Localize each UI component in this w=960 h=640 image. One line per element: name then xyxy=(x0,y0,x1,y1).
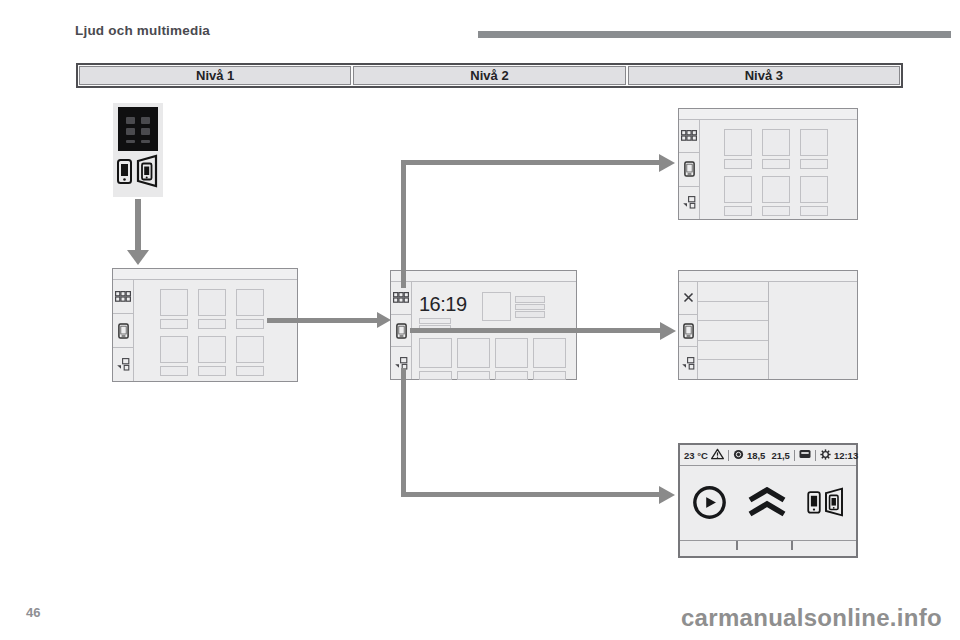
watermark: carmanualsonline.info xyxy=(681,604,942,632)
arrow-level2-to-list xyxy=(410,328,661,333)
page-title: Ljud och multimedia xyxy=(75,23,210,38)
arrow-level2-to-connect-horizontal xyxy=(401,492,661,497)
arrowhead-right-icon xyxy=(660,322,676,340)
bottom-strip xyxy=(680,540,856,556)
screen-sidebar xyxy=(391,282,412,379)
arrowhead-right-icon xyxy=(659,486,675,504)
separator xyxy=(728,450,729,461)
list-item xyxy=(698,301,768,321)
app-tile xyxy=(800,176,828,216)
gear-icon xyxy=(820,449,831,462)
clock-label-bar xyxy=(419,318,451,324)
status-bar: 23 °C 18,5 21,5 xyxy=(680,445,856,466)
status-time: 12:13 xyxy=(834,450,858,461)
widget-icon xyxy=(113,347,133,381)
level-1-header: Nivå 1 xyxy=(79,66,351,85)
media-widget xyxy=(482,292,511,321)
app-tile xyxy=(724,129,752,169)
smartphone-icon xyxy=(679,152,699,185)
level-3-header: Nivå 3 xyxy=(628,66,900,85)
level3-connect-screen: 23 °C 18,5 21,5 xyxy=(678,443,858,558)
level1-home-screen xyxy=(112,268,298,382)
arrow-start-to-level1 xyxy=(135,199,141,251)
arrowhead-right-icon xyxy=(659,154,675,172)
arrowhead-right-icon xyxy=(377,312,391,328)
mirror-screen-icon xyxy=(806,486,846,522)
manual-page: Ljud och multimedia Nivå 1 Nivå 2 Nivå 3 xyxy=(0,0,960,640)
list-item xyxy=(698,340,768,360)
app-tile xyxy=(198,336,226,376)
outside-temp: 23 °C xyxy=(684,450,708,461)
app-tile xyxy=(533,338,566,380)
app-tile xyxy=(457,338,490,380)
arrow-level2-to-connect-vertical xyxy=(401,368,406,497)
close-icon xyxy=(679,282,697,314)
app-tile xyxy=(160,289,188,329)
level-2-header: Nivå 2 xyxy=(353,66,625,85)
screen-sidebar xyxy=(679,282,698,379)
app-tile xyxy=(236,336,264,376)
citroen-logo-icon xyxy=(746,487,788,521)
list-line xyxy=(515,296,545,303)
temp-left: 18,5 xyxy=(747,450,766,461)
detail-panel xyxy=(769,282,857,379)
temp-right: 21,5 xyxy=(771,450,790,461)
smartphone-icon xyxy=(113,313,133,347)
level3-list-screen xyxy=(678,270,858,380)
app-tile xyxy=(762,176,790,216)
arrow-level1-to-level2 xyxy=(267,318,379,323)
status-strip xyxy=(679,271,857,282)
media-icon xyxy=(733,449,744,462)
app-grid-icon xyxy=(113,280,133,313)
strip-divider xyxy=(791,541,793,550)
connection-options xyxy=(680,466,856,540)
app-tile xyxy=(495,338,528,380)
mirror-screen-app-button xyxy=(113,103,163,197)
app-tile xyxy=(800,129,828,169)
app-tile xyxy=(724,176,752,216)
smartphone-icon xyxy=(391,314,411,347)
smartphone-icon xyxy=(679,314,697,347)
app-tile-icon xyxy=(118,107,158,151)
display-icon xyxy=(799,449,811,461)
app-tile xyxy=(762,129,790,169)
status-strip xyxy=(679,109,857,120)
strip-divider xyxy=(736,541,738,550)
app-tile xyxy=(198,289,226,329)
shortcut-tile-row xyxy=(419,338,566,380)
arrow-level2-to-apps-vertical xyxy=(401,160,406,288)
app-tile xyxy=(419,338,452,380)
separator xyxy=(815,450,816,461)
list-line xyxy=(515,311,545,318)
list-item xyxy=(698,320,768,340)
header-rule xyxy=(478,31,951,38)
list-item xyxy=(698,359,768,379)
app-tile-grid xyxy=(134,280,297,381)
carplay-icon xyxy=(691,484,728,525)
status-strip xyxy=(113,269,297,280)
level3-apps-screen xyxy=(678,108,858,220)
level-header-table: Nivå 1 Nivå 2 Nivå 3 xyxy=(76,63,903,88)
warning-icon xyxy=(711,448,724,462)
widget-icon xyxy=(679,186,699,219)
app-tile-grid xyxy=(700,120,857,219)
app-grid-icon xyxy=(679,120,699,152)
page-number: 46 xyxy=(26,605,40,620)
clock-widget: 16:19 xyxy=(419,293,467,316)
screen-sidebar xyxy=(679,120,700,219)
mirror-screen-icon xyxy=(116,153,160,193)
app-tile xyxy=(160,336,188,376)
widget-icon xyxy=(679,346,697,379)
menu-list xyxy=(698,282,769,379)
arrow-level2-to-apps-horizontal xyxy=(401,160,661,165)
separator xyxy=(794,450,795,461)
arrowhead-down-icon xyxy=(127,250,149,265)
list-line xyxy=(515,304,545,311)
app-tile xyxy=(236,289,264,329)
status-strip xyxy=(391,271,576,282)
screen-sidebar xyxy=(113,280,134,381)
list-item xyxy=(698,282,768,301)
level2-home-screen: 16:19 xyxy=(390,270,577,380)
